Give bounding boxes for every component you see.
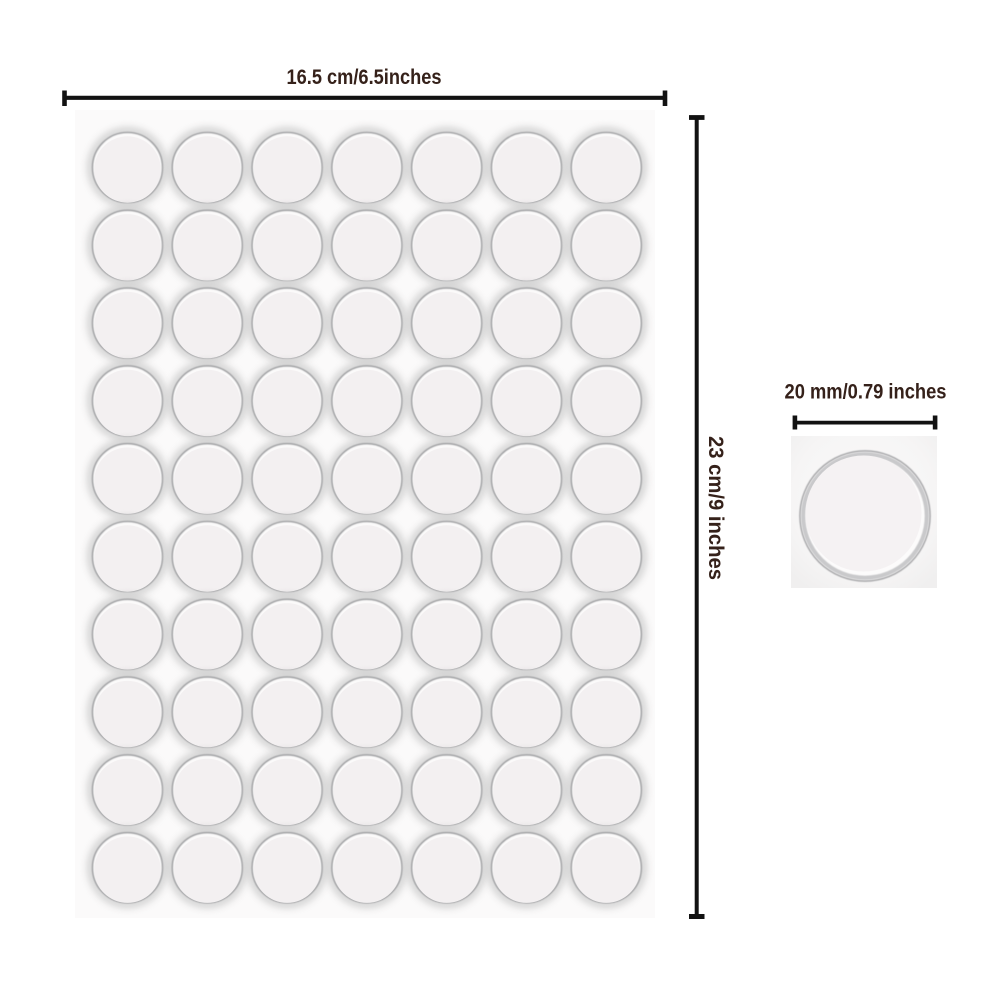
svg-text:20 mm/0.79 inches: 20 mm/0.79 inches bbox=[785, 381, 947, 404]
svg-text:16.5 cm/6.5inches: 16.5 cm/6.5inches bbox=[287, 66, 442, 89]
svg-text:23 cm/9 inches: 23 cm/9 inches bbox=[704, 436, 727, 580]
